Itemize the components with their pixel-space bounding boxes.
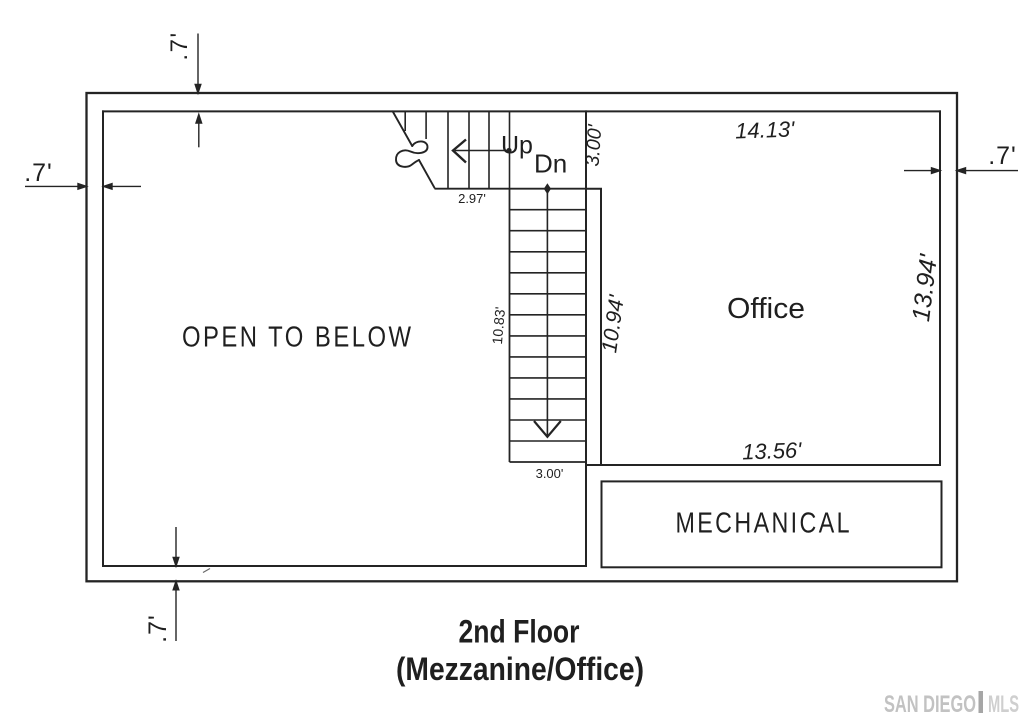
svg-text:Dn: Dn bbox=[534, 149, 567, 179]
svg-text:OPEN TO BELOW: OPEN TO BELOW bbox=[182, 322, 414, 354]
svg-text:14.13': 14.13' bbox=[735, 116, 796, 143]
svg-text:10.83': 10.83' bbox=[489, 306, 508, 345]
svg-text:SAN DIEGO: SAN DIEGO bbox=[884, 691, 976, 717]
svg-text:3.00': 3.00' bbox=[582, 123, 607, 167]
svg-text:Up: Up bbox=[501, 132, 533, 160]
svg-text:.7': .7' bbox=[166, 31, 193, 60]
svg-text:MLS: MLS bbox=[988, 691, 1019, 717]
svg-text:13.56': 13.56' bbox=[742, 437, 803, 464]
svg-text:.7': .7' bbox=[144, 614, 172, 643]
svg-text:2.97': 2.97' bbox=[458, 191, 486, 206]
svg-text:.7': .7' bbox=[988, 142, 1017, 170]
svg-text:MECHANICAL: MECHANICAL bbox=[676, 508, 853, 540]
svg-text:3.00': 3.00' bbox=[536, 466, 564, 481]
svg-text:(Mezzanine/Office): (Mezzanine/Office) bbox=[396, 651, 644, 687]
svg-text:.7': .7' bbox=[24, 159, 53, 187]
svg-text:2nd Floor: 2nd Floor bbox=[459, 614, 580, 650]
svg-text:Office: Office bbox=[727, 293, 805, 325]
